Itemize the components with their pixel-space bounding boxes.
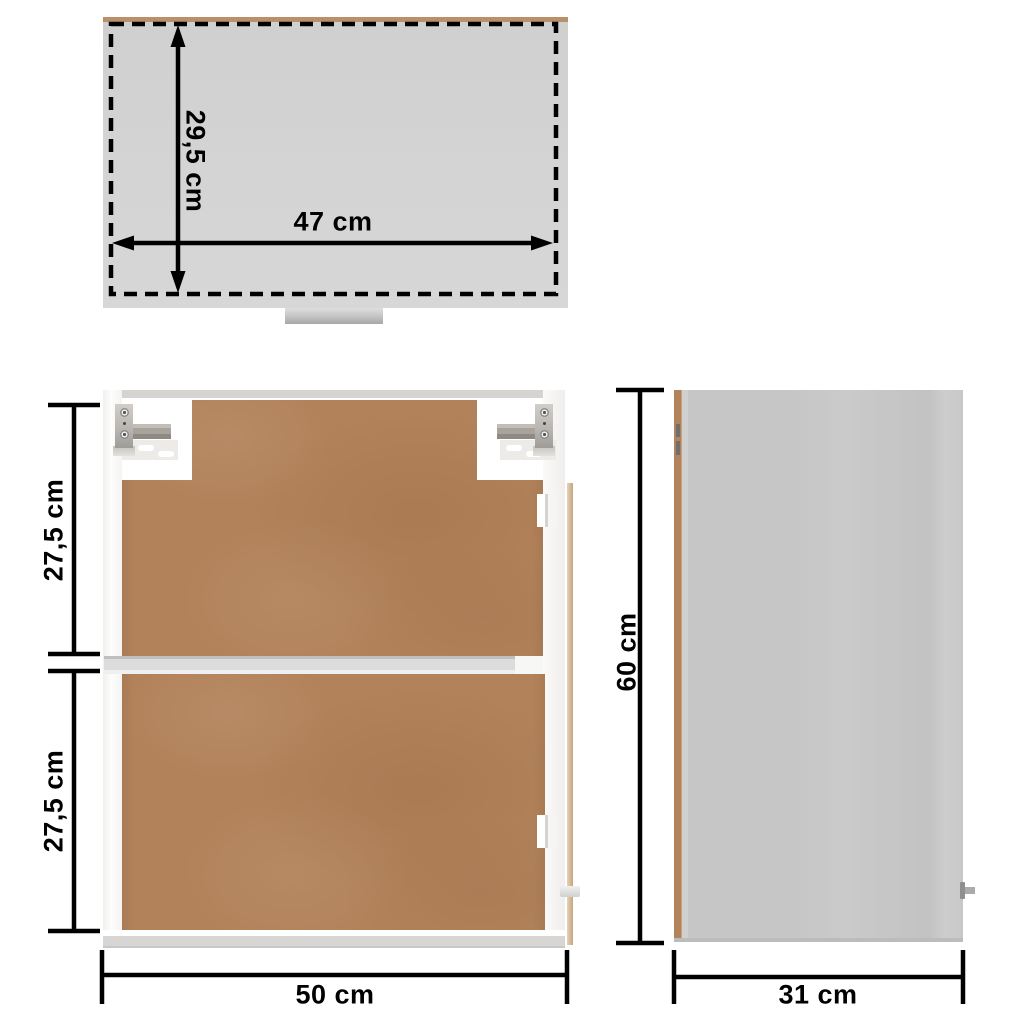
dimension-label-top-depth: 29,5 cm <box>180 110 211 213</box>
upper-hinge <box>537 494 557 527</box>
side-view-hinge-mark <box>676 441 680 455</box>
side-view-hinge-mark <box>676 424 680 437</box>
right-bracket-arm <box>497 424 535 439</box>
front-view-bottom-panel <box>103 930 565 948</box>
dimension-label-top-width: 47 cm <box>293 207 372 238</box>
rail-slot <box>506 445 522 451</box>
front-view-right-side-panel <box>543 390 565 948</box>
front-view-open-door-edge <box>567 483 573 945</box>
side-view-panel <box>674 390 963 942</box>
top-view-door-handle <box>285 308 383 324</box>
front-view-shelf <box>104 656 515 674</box>
front-view-top-edge <box>103 390 543 398</box>
rail-slot <box>158 451 174 457</box>
front-view-door-handle <box>560 886 580 897</box>
dimension-label-front-width: 50 cm <box>295 980 374 1011</box>
dimension-label-side-height: 60 cm <box>612 612 643 691</box>
dimension-label-front-upper-height: 27,5 cm <box>39 479 70 582</box>
screw-icon <box>120 408 129 417</box>
dimension-label-front-lower-height: 27,5 cm <box>39 750 70 853</box>
front-view-upper-back-panel <box>122 398 543 656</box>
front-view-shelf-gap <box>515 656 543 674</box>
screw-dot <box>123 422 126 425</box>
screw-icon <box>120 430 129 439</box>
lower-hinge <box>537 815 557 848</box>
top-view-body <box>103 17 568 308</box>
screw-icon <box>540 430 549 439</box>
product-dimension-diagram: 29,5 cm 47 cm 27,5 cm 27,5 cm 50 cm 60 c… <box>0 0 1024 1024</box>
side-view-door-handle-stem <box>965 887 975 894</box>
dimension-label-side-depth: 31 cm <box>778 980 857 1011</box>
front-view-lower-back-panel <box>122 674 545 930</box>
left-bracket-arm <box>133 424 171 439</box>
screw-dot <box>543 422 546 425</box>
rail-slot <box>138 445 154 451</box>
screw-icon <box>540 408 549 417</box>
